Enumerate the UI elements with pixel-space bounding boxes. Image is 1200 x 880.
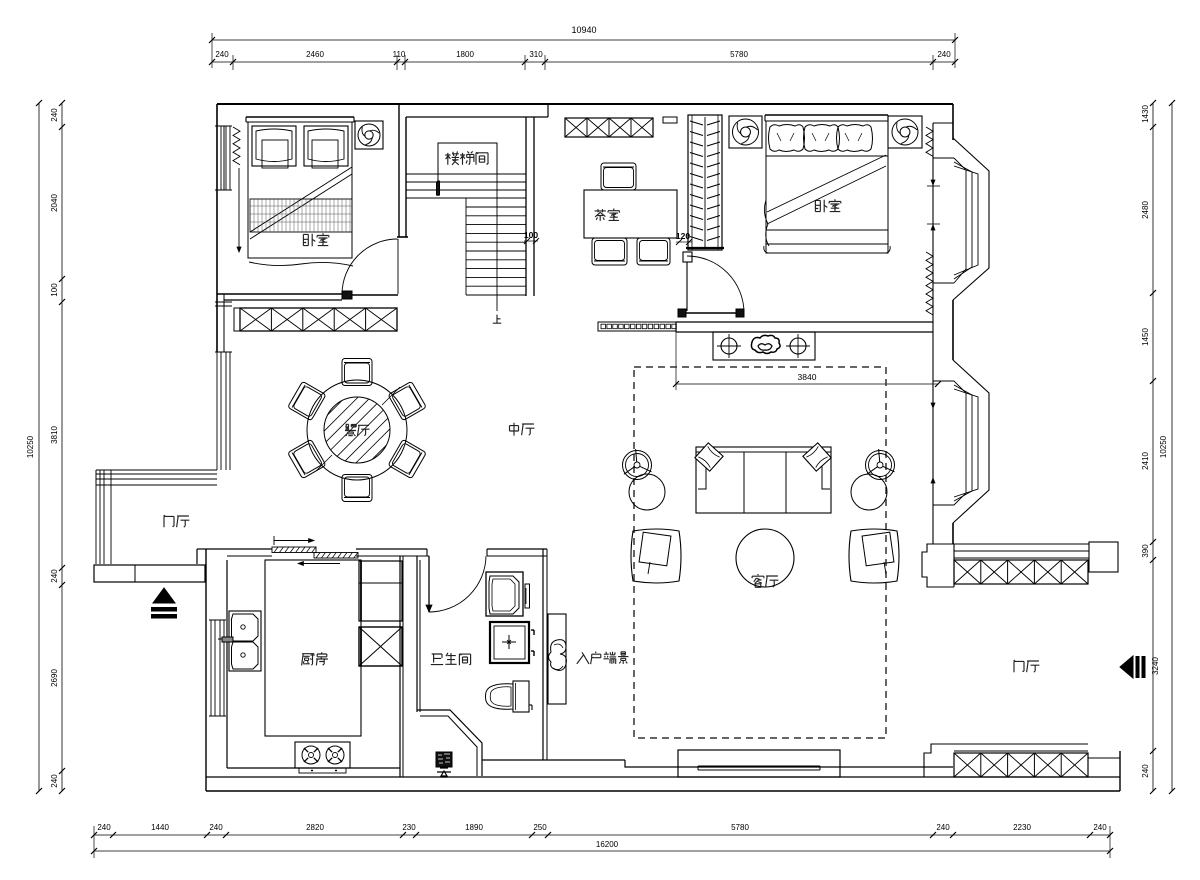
svg-text:2460: 2460 — [306, 50, 324, 59]
svg-text:240: 240 — [50, 774, 59, 788]
svg-text:240: 240 — [937, 50, 951, 59]
svg-text:240: 240 — [50, 569, 59, 583]
svg-text:2480: 2480 — [1141, 201, 1150, 219]
svg-text:5780: 5780 — [731, 823, 749, 832]
svg-text:1430: 1430 — [1141, 105, 1150, 123]
svg-text:110: 110 — [393, 50, 406, 59]
svg-text:390: 390 — [1141, 544, 1150, 558]
svg-text:5780: 5780 — [730, 50, 748, 59]
svg-text:240: 240 — [50, 108, 59, 122]
svg-text:3840: 3840 — [798, 372, 817, 382]
svg-text:1800: 1800 — [456, 50, 474, 59]
svg-text:2410: 2410 — [1141, 452, 1150, 470]
svg-text:10250: 10250 — [26, 435, 35, 458]
svg-text:240: 240 — [97, 823, 111, 832]
svg-text:16200: 16200 — [596, 840, 619, 849]
svg-text:310: 310 — [529, 50, 543, 59]
svg-text:1440: 1440 — [151, 823, 169, 832]
svg-text:2040: 2040 — [50, 194, 59, 212]
svg-text:100: 100 — [524, 230, 538, 240]
svg-text:1450: 1450 — [1141, 328, 1150, 346]
svg-text:10940: 10940 — [571, 25, 596, 35]
svg-text:2820: 2820 — [306, 823, 324, 832]
svg-text:230: 230 — [402, 823, 416, 832]
svg-text:2230: 2230 — [1013, 823, 1031, 832]
svg-text:240: 240 — [209, 823, 223, 832]
svg-text:240: 240 — [936, 823, 950, 832]
svg-text:250: 250 — [533, 823, 547, 832]
svg-text:240: 240 — [215, 50, 229, 59]
svg-text:3240: 3240 — [1151, 657, 1160, 675]
svg-text:240: 240 — [1141, 764, 1150, 778]
svg-text:100: 100 — [50, 283, 59, 297]
svg-text:120: 120 — [676, 231, 690, 241]
svg-text:240: 240 — [1093, 823, 1107, 832]
svg-text:3810: 3810 — [50, 426, 59, 444]
svg-text:1890: 1890 — [465, 823, 483, 832]
svg-text:2690: 2690 — [50, 669, 59, 687]
svg-text:10250: 10250 — [1159, 435, 1168, 458]
